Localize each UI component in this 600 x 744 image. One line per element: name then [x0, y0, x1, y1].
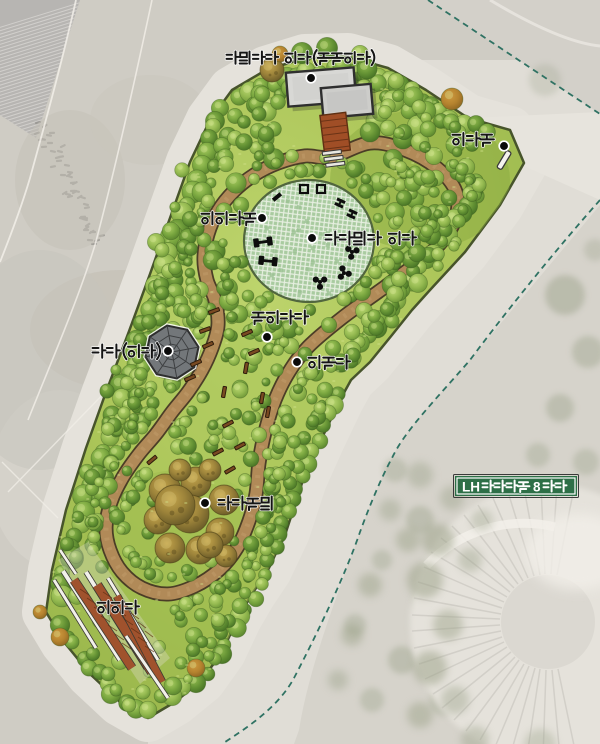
svg-text:LH: LH: [462, 480, 480, 495]
svg-text:8: 8: [533, 480, 541, 495]
